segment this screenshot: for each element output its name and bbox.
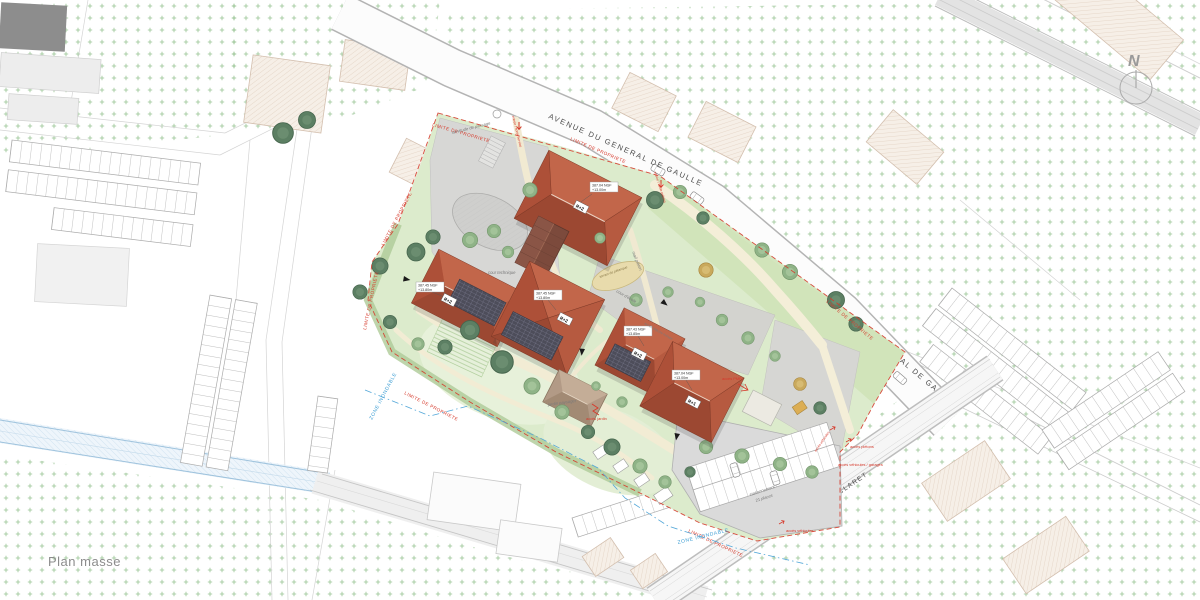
north-letter: N	[1128, 53, 1140, 70]
svg-text:accès jardin: accès jardin	[586, 416, 607, 421]
svg-text:+13.80m: +13.80m	[418, 288, 432, 292]
page-title: Plan masse	[48, 554, 121, 569]
survey-marker	[493, 110, 501, 118]
svg-text:+13.85m: +13.85m	[626, 332, 640, 336]
svg-text:accès piétons: accès piétons	[850, 444, 874, 449]
svg-text:+13.00m: +13.00m	[592, 188, 606, 192]
svg-text:387.45 NGF: 387.45 NGF	[536, 292, 556, 296]
svg-text:+13.80m: +13.80m	[536, 296, 550, 300]
svg-text:accès véhicules: accès véhicules	[786, 528, 814, 533]
svg-text:accès PMR: accès PMR	[722, 376, 742, 381]
svg-text:387.04 NGF: 387.04 NGF	[674, 372, 694, 376]
svg-text:+13.00m: +13.00m	[674, 376, 688, 380]
cour-technique-label: cour technique	[488, 270, 516, 275]
parking-left-rows	[2, 140, 338, 473]
svg-text:accès véhicules / garages: accès véhicules / garages	[838, 462, 883, 467]
zone-inondable-label-1: ZONE INONDABLE	[368, 372, 398, 421]
svg-text:387.45 NGF: 387.45 NGF	[418, 284, 438, 288]
site-plan-map: AVENUE DU GENERAL DE GAULLE AVENUE DU GE…	[0, 0, 1200, 600]
svg-text:387.43 NGF: 387.43 NGF	[626, 328, 646, 332]
svg-text:387.04 NGF: 387.04 NGF	[592, 184, 612, 188]
